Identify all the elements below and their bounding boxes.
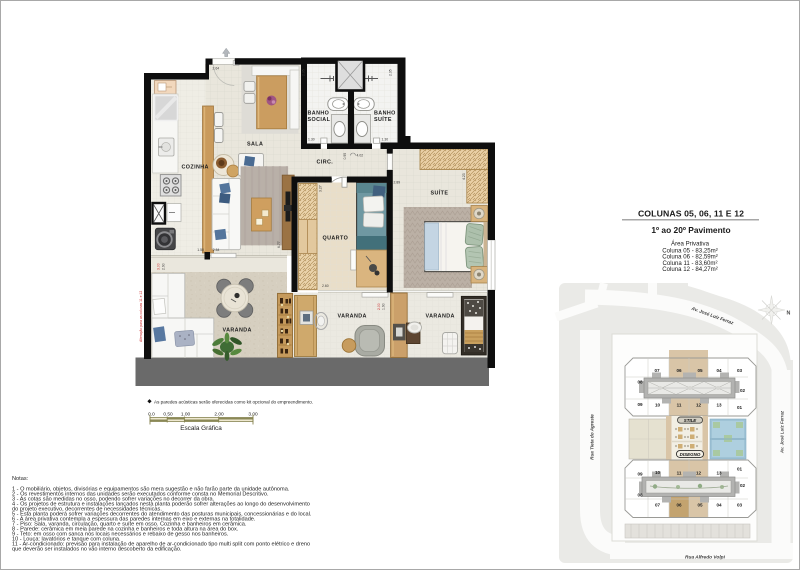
svg-text:05: 05 [697,368,703,373]
svg-text:2.64: 2.64 [213,67,220,71]
svg-text:06: 06 [676,503,682,508]
svg-text:SUÍTE: SUÍTE [431,189,449,197]
svg-text:1.50: 1.50 [197,248,204,252]
svg-text:08: 08 [637,493,643,498]
svg-text:N: N [787,311,791,317]
svg-text:12: 12 [696,403,702,408]
svg-text:06: 06 [676,368,682,373]
svg-text:3.00: 3.00 [157,263,161,270]
svg-text:QUARTO: QUARTO [323,236,349,242]
svg-text:07: 07 [655,503,661,508]
svg-text:05: 05 [697,503,703,508]
svg-text:02: 02 [740,388,746,393]
svg-text:0.50: 0.50 [163,412,173,418]
svg-text:08: 08 [637,380,643,385]
svg-text:CIRC.: CIRC. [317,159,334,165]
svg-text:03: 03 [737,368,743,373]
svg-text:1.30: 1.30 [382,138,389,142]
svg-text:1.00: 1.00 [181,412,191,418]
svg-text:0.95: 0.95 [343,153,347,160]
svg-text:SALA: SALA [247,141,263,147]
svg-text:09: 09 [637,402,643,407]
svg-text:02: 02 [740,483,746,488]
svg-text:10: 10 [655,470,661,475]
svg-text:STILE: STILE [684,418,698,423]
svg-text:Coluna 12 - 84,27m²: Coluna 12 - 84,27m² [662,266,718,273]
svg-text:11: 11 [677,403,682,408]
svg-text:Rua Tieta do Agreste: Rua Tieta do Agreste [590,414,595,460]
svg-text:03: 03 [737,503,743,508]
svg-text:DISEGNO: DISEGNO [680,452,701,457]
svg-text:VARANDA: VARANDA [223,328,252,334]
svg-text:Escala Gráfica: Escala Gráfica [180,425,222,432]
svg-text:BANHO: BANHO [374,111,396,117]
svg-text:13: 13 [716,471,722,476]
svg-text:SOCIAL: SOCIAL [308,117,331,123]
svg-text:VARANDA: VARANDA [426,314,455,320]
svg-text:04: 04 [716,368,722,373]
svg-text:Notas:: Notas: [12,476,29,482]
svg-text:07: 07 [654,368,660,373]
svg-text:01: 01 [737,405,743,410]
svg-text:2.35: 2.35 [389,69,393,76]
svg-text:3.27: 3.27 [319,185,323,192]
svg-text:2.89: 2.89 [394,181,401,185]
svg-text:11: 11 [677,471,682,476]
svg-text:13: 13 [716,403,722,408]
svg-text:2.35: 2.35 [302,69,306,76]
svg-text:Alteração para as colunas 11 e: Alteração para as colunas 11 e 12 [139,291,143,342]
svg-text:4.02: 4.02 [357,153,364,157]
svg-text:4.23: 4.23 [462,173,466,180]
svg-text:As paredes acústicas serão ofe: As paredes acústicas serão oferecidas co… [154,400,313,405]
svg-text:2.90: 2.90 [162,263,166,270]
svg-text:2.00: 2.00 [377,303,381,310]
svg-text:0.0: 0.0 [148,412,155,418]
svg-text:10: 10 [655,403,661,408]
svg-text:1º ao 20º Pavimento: 1º ao 20º Pavimento [651,225,730,235]
svg-text:04: 04 [716,503,722,508]
svg-text:SUÍTE: SUÍTE [374,115,392,123]
svg-text:BANHO: BANHO [308,111,330,117]
svg-text:Rua Alfredo Volpi: Rua Alfredo Volpi [685,555,726,561]
svg-text:6.77: 6.77 [277,241,281,248]
svg-text:12: 12 [696,471,702,476]
svg-text:COZINHA: COZINHA [182,165,209,171]
svg-text:Av. José Luiz Ferraz: Av. José Luiz Ferraz [780,410,785,454]
svg-text:09: 09 [637,472,643,477]
svg-text:VARANDA: VARANDA [338,314,367,320]
svg-text:2.00: 2.00 [214,412,224,418]
svg-text:1.90: 1.90 [382,303,386,310]
svg-text:COLUNAS 05, 06, 11 E 12: COLUNAS 05, 06, 11 E 12 [638,209,744,219]
svg-text:01: 01 [737,467,743,472]
svg-text:2.60: 2.60 [322,284,329,288]
svg-text:que deverão ser instalados no: que deverão ser instalados no vão intern… [12,547,182,553]
svg-text:2.54: 2.54 [213,248,220,252]
svg-text:1.30: 1.30 [308,138,315,142]
